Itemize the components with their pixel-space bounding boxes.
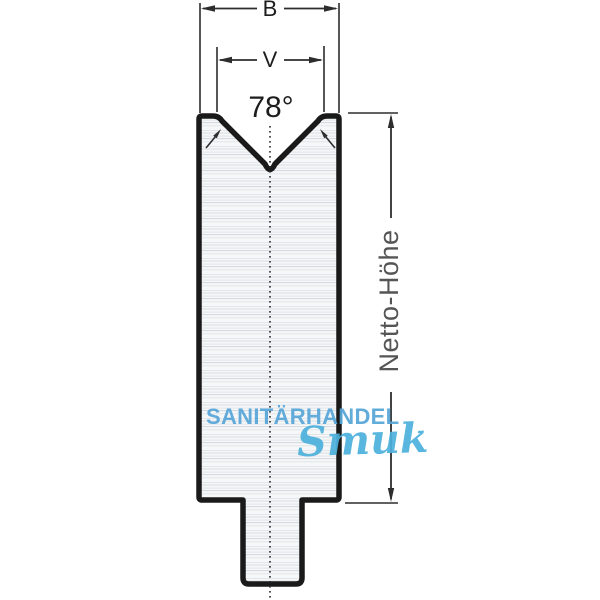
watermark-script-text: Smuk [296,414,429,467]
die-drawing-canvas [0,0,600,600]
die-body-outline [199,116,339,584]
b-arrow-right-icon [324,5,338,11]
height-arrow-down-icon [388,488,394,502]
dim-label-height: Netto-Höhe [375,201,403,401]
dim-label-v: V [250,47,290,73]
v-arrow-right-icon [309,57,323,63]
v-arrow-left-icon [218,57,232,63]
dim-label-b: B [250,0,290,22]
dim-label-angle: 78° [239,92,303,124]
height-arrow-up-icon [388,114,394,128]
technical-drawing: B V 78° Netto-Höhe SANITÄRHANDEL Smuk [0,0,600,600]
b-arrow-left-icon [201,5,215,11]
